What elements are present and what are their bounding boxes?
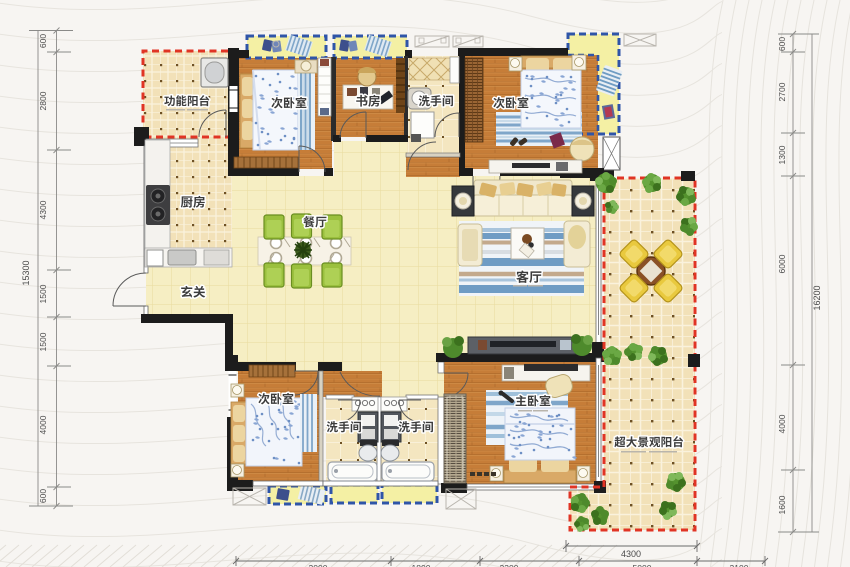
svg-text:1800: 1800 <box>412 563 431 567</box>
svg-text:4000: 4000 <box>777 414 787 433</box>
svg-text:4000: 4000 <box>38 415 48 434</box>
svg-text:1300: 1300 <box>777 145 787 164</box>
svg-text:4300: 4300 <box>621 549 641 559</box>
svg-text:1500: 1500 <box>38 284 48 303</box>
svg-text:600: 600 <box>777 37 787 51</box>
svg-text:2800: 2800 <box>38 91 48 110</box>
svg-text:2700: 2700 <box>777 82 787 101</box>
svg-text:600: 600 <box>38 489 48 503</box>
svg-text:1600: 1600 <box>777 495 787 514</box>
svg-text:4300: 4300 <box>38 200 48 219</box>
svg-text:1500: 1500 <box>38 332 48 351</box>
svg-text:3300: 3300 <box>500 563 519 567</box>
svg-text:16200: 16200 <box>812 285 822 310</box>
svg-text:15300: 15300 <box>21 260 31 285</box>
svg-text:6000: 6000 <box>777 254 787 273</box>
svg-text:600: 600 <box>38 34 48 48</box>
svg-text:3000: 3000 <box>309 563 328 567</box>
svg-text:3100: 3100 <box>730 563 749 567</box>
svg-text:5000: 5000 <box>633 563 652 567</box>
